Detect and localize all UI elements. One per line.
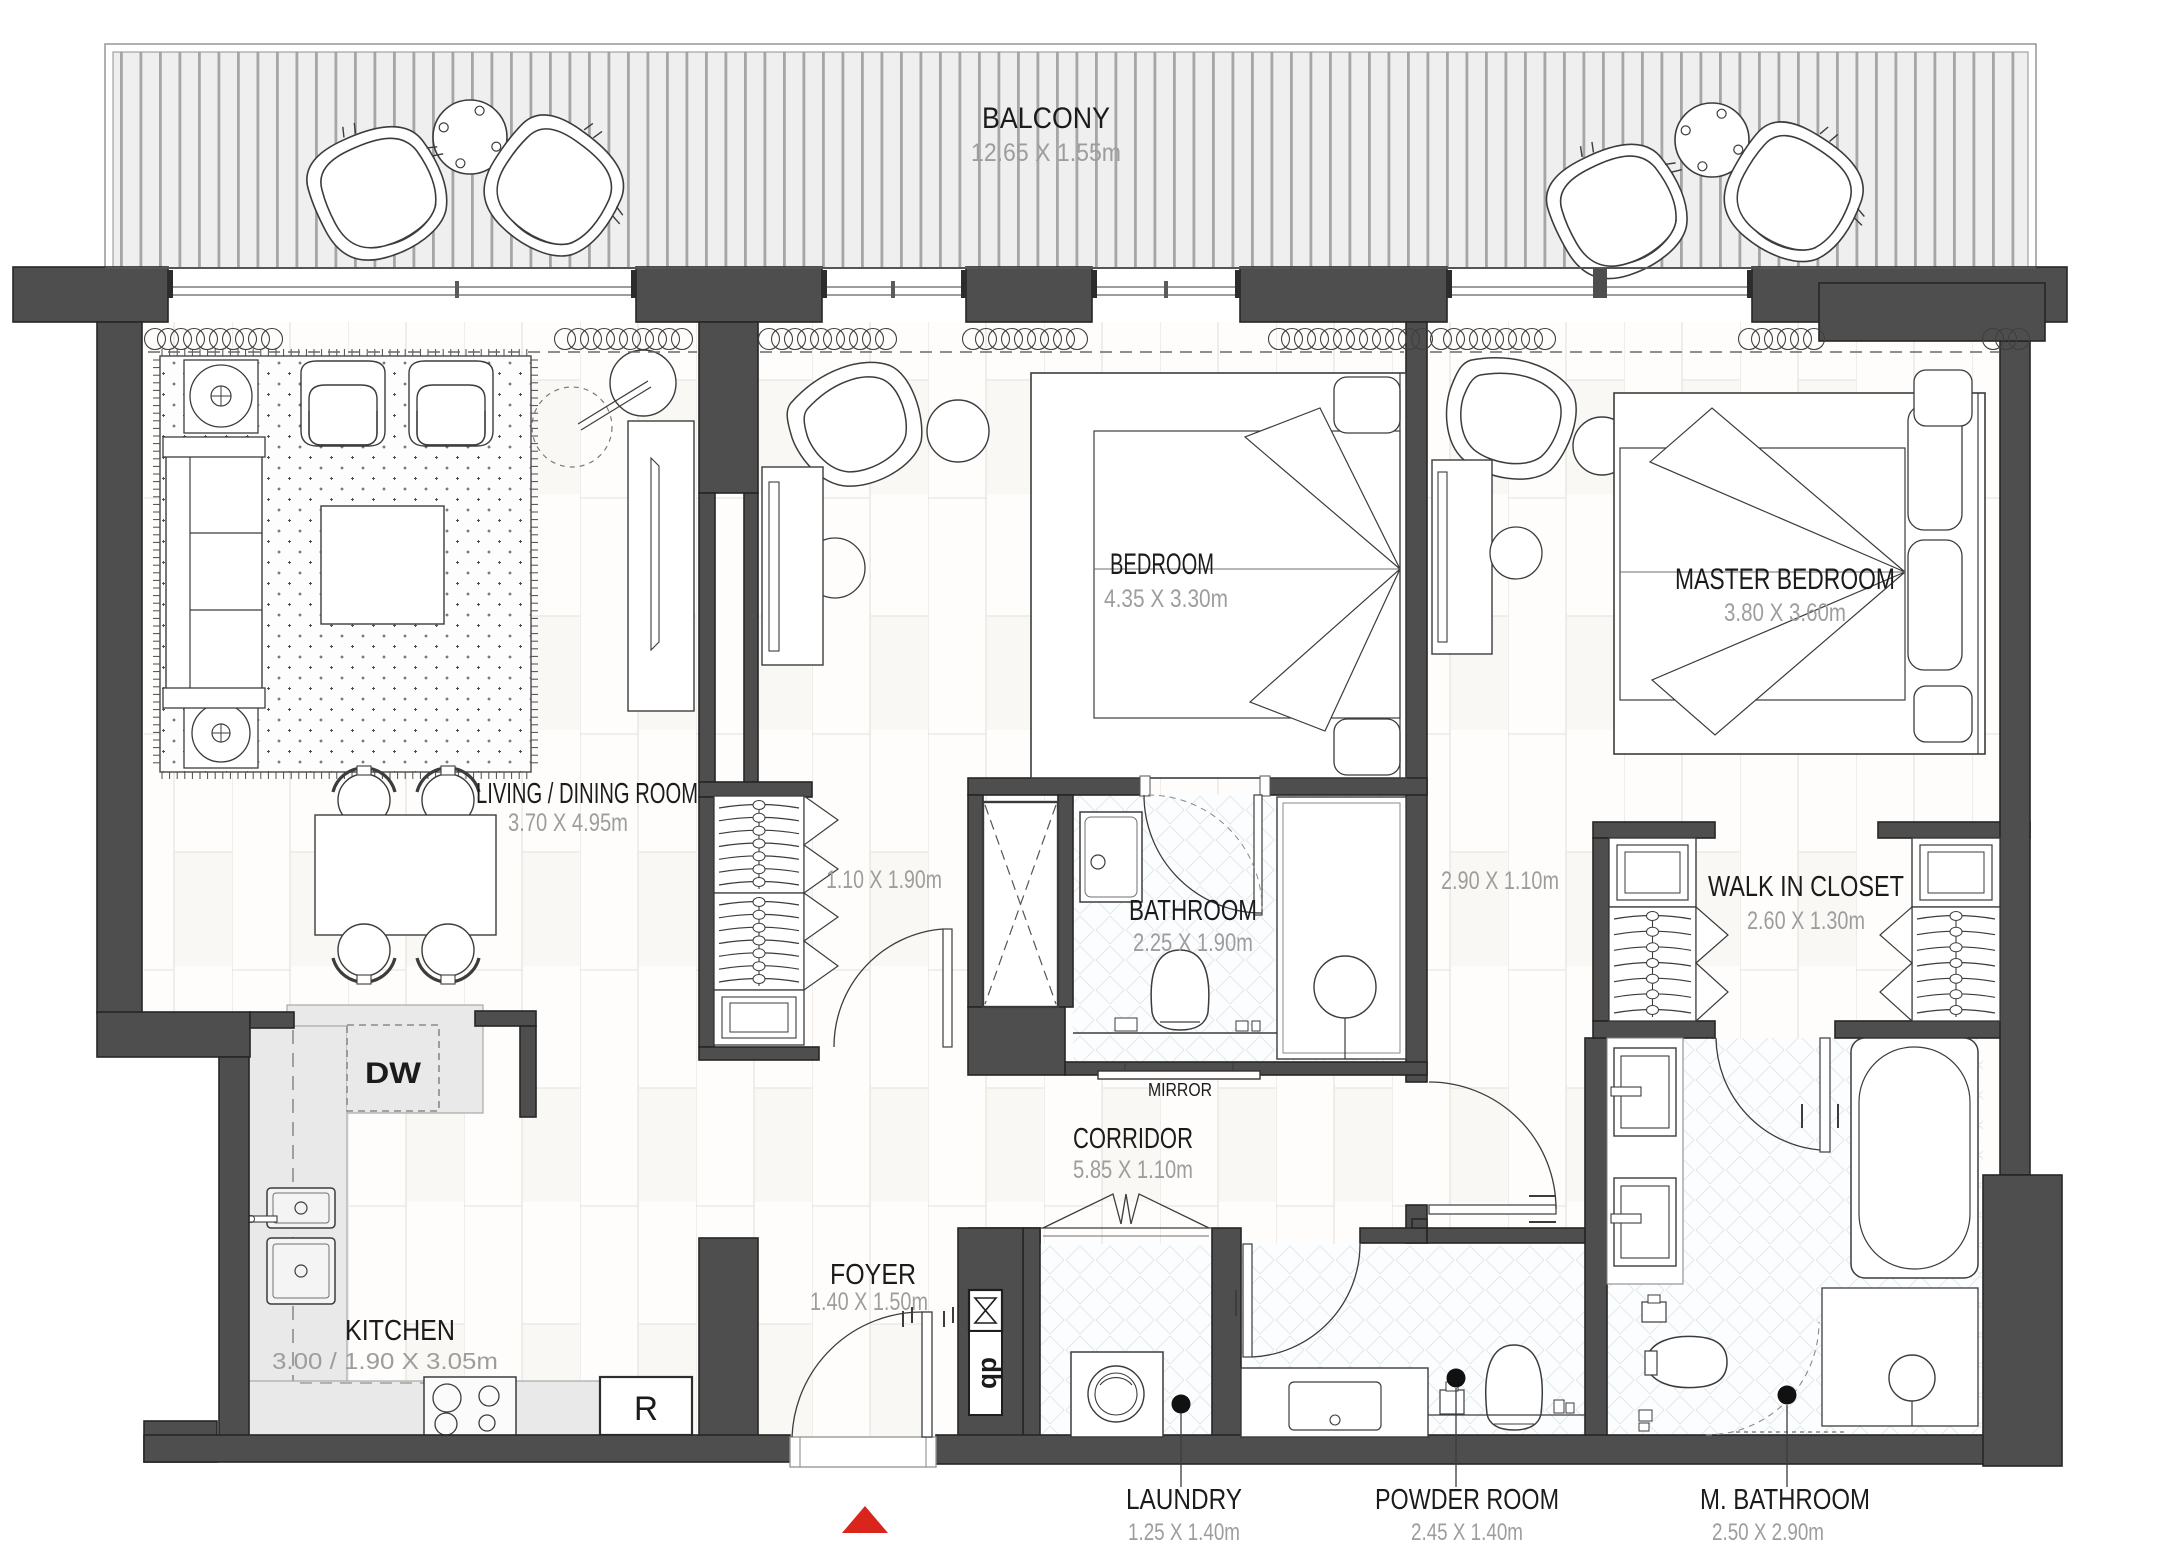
svg-text:LAUNDRY: LAUNDRY xyxy=(1126,1484,1242,1516)
svg-text:3.00 / 1.90 X 3.05m: 3.00 / 1.90 X 3.05m xyxy=(272,1348,498,1374)
svg-text:2.25 X 1.90m: 2.25 X 1.90m xyxy=(1133,929,1253,957)
svg-text:M. BATHROOM: M. BATHROOM xyxy=(1700,1484,1870,1516)
svg-text:4.35 X 3.30m: 4.35 X 3.30m xyxy=(1104,585,1228,613)
svg-text:R: R xyxy=(634,1390,658,1428)
svg-text:FOYER: FOYER xyxy=(830,1259,916,1291)
svg-text:MIRROR: MIRROR xyxy=(1148,1080,1212,1100)
svg-text:2.60 X 1.30m: 2.60 X 1.30m xyxy=(1747,907,1865,935)
svg-text:CORRIDOR: CORRIDOR xyxy=(1073,1123,1193,1155)
svg-text:3.80 X 3.60m: 3.80 X 3.60m xyxy=(1724,599,1846,627)
svg-text:1.10 X 1.90m: 1.10 X 1.90m xyxy=(826,866,942,894)
svg-text:1.40 X 1.50m: 1.40 X 1.50m xyxy=(810,1288,928,1316)
svg-text:db: db xyxy=(976,1357,1006,1389)
svg-text:KITCHEN: KITCHEN xyxy=(345,1315,455,1347)
svg-text:MASTER BEDROOM: MASTER BEDROOM xyxy=(1675,563,1895,596)
svg-text:LIVING / DINING ROOM: LIVING / DINING ROOM xyxy=(476,778,698,810)
svg-text:2.45 X 1.40m: 2.45 X 1.40m xyxy=(1411,1519,1523,1546)
svg-text:5.85 X 1.10m: 5.85 X 1.10m xyxy=(1073,1156,1193,1184)
svg-text:3.70 X 4.95m: 3.70 X 4.95m xyxy=(508,809,628,837)
svg-text:BATHROOM: BATHROOM xyxy=(1129,895,1257,927)
svg-text:BEDROOM: BEDROOM xyxy=(1110,548,1214,581)
svg-text:2.50 X 2.90m: 2.50 X 2.90m xyxy=(1712,1519,1824,1546)
svg-text:1.25 X 1.40m: 1.25 X 1.40m xyxy=(1128,1519,1240,1546)
svg-text:BALCONY: BALCONY xyxy=(982,102,1110,135)
svg-text:POWDER ROOM: POWDER ROOM xyxy=(1375,1484,1559,1516)
svg-text:DW: DW xyxy=(365,1057,422,1090)
svg-text:12.65 X 1.55m: 12.65 X 1.55m xyxy=(971,139,1121,167)
svg-text:WALK IN CLOSET: WALK IN CLOSET xyxy=(1708,871,1904,903)
svg-text:2.90 X 1.10m: 2.90 X 1.10m xyxy=(1441,867,1559,895)
